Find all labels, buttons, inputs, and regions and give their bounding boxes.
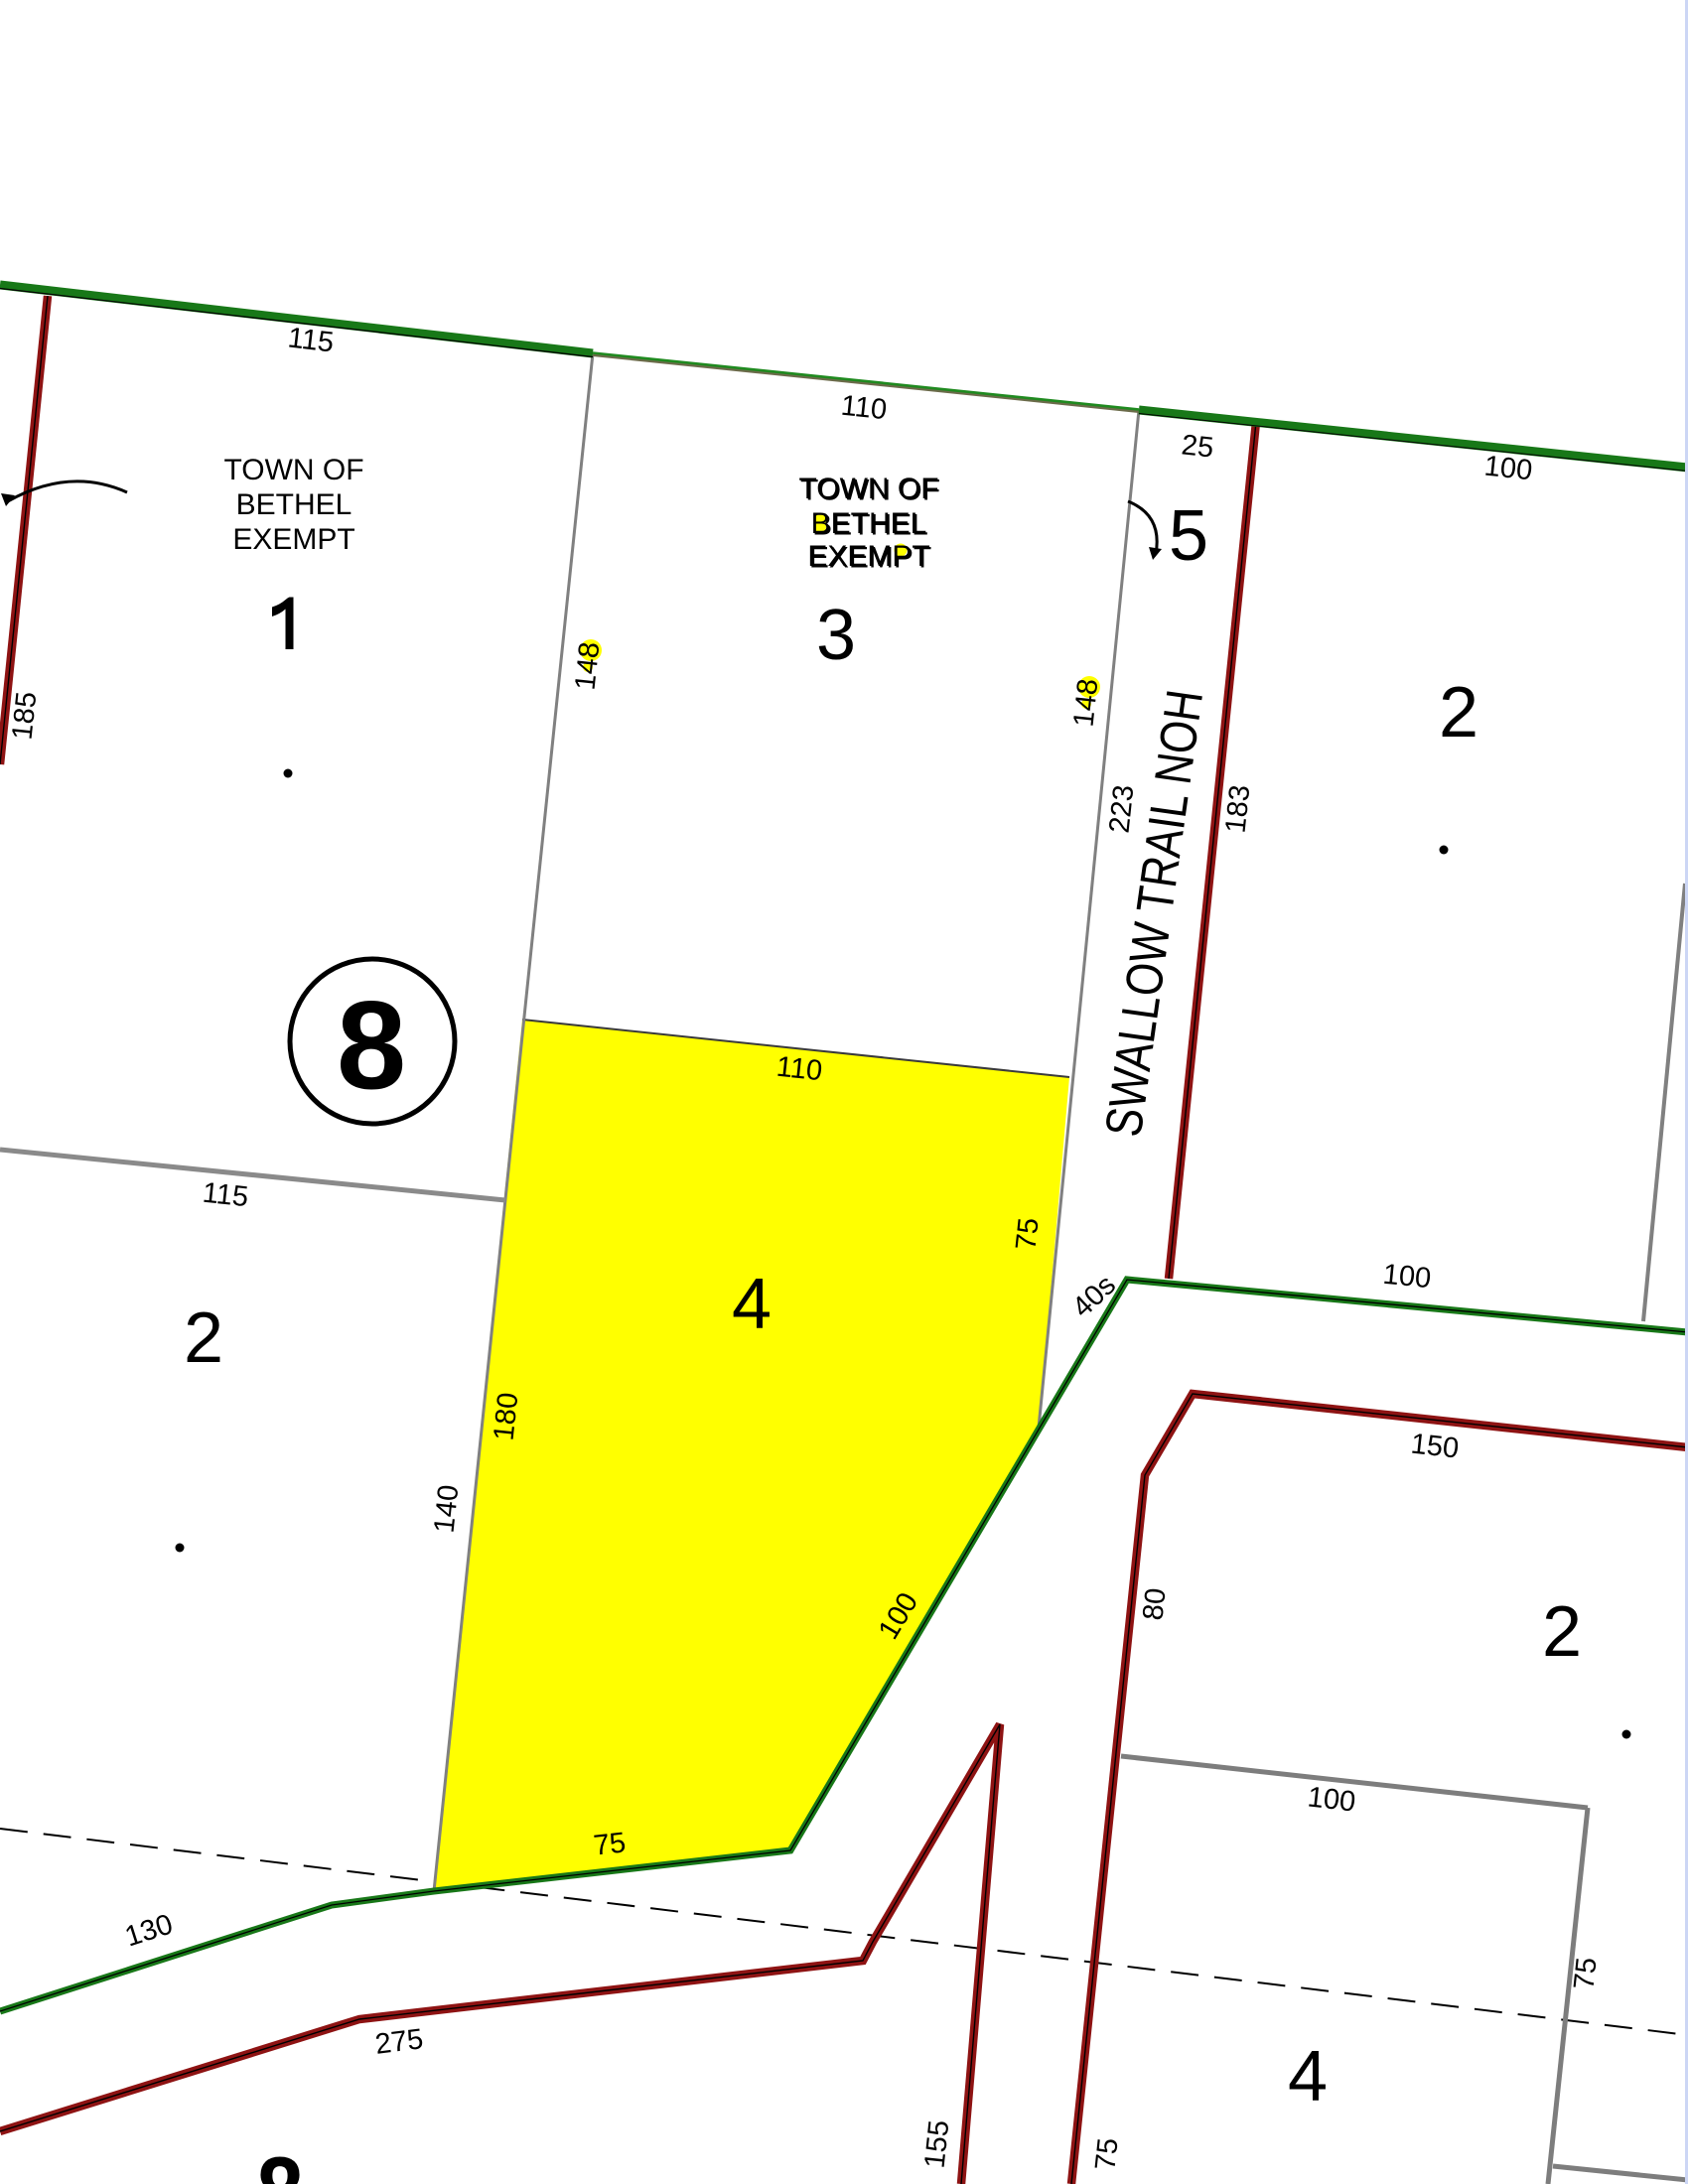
- svg-text:75: 75: [592, 1827, 628, 1861]
- svg-text:5: 5: [1169, 496, 1208, 576]
- svg-text:75: 75: [1089, 2136, 1124, 2171]
- svg-text:2: 2: [1439, 673, 1478, 752]
- svg-text:275: 275: [373, 2023, 425, 2061]
- svg-text:BETHEL: BETHEL: [811, 507, 927, 540]
- svg-text:148: 148: [1068, 677, 1105, 728]
- svg-text:155: 155: [919, 2118, 956, 2169]
- svg-text:115: 115: [286, 322, 336, 358]
- svg-text:4: 4: [1288, 2037, 1328, 2116]
- svg-text:8: 8: [256, 2136, 303, 2184]
- svg-text:TOWN OF: TOWN OF: [798, 473, 938, 505]
- svg-text:110: 110: [839, 390, 888, 427]
- svg-text:100: 100: [1482, 451, 1533, 487]
- svg-text:EXEMPT: EXEMPT: [232, 523, 354, 556]
- svg-text:115: 115: [201, 1177, 249, 1214]
- svg-text:EXEMPT: EXEMPT: [807, 540, 929, 573]
- svg-text:100: 100: [1306, 1781, 1357, 1818]
- svg-text:8: 8: [337, 976, 406, 1116]
- svg-text:183: 183: [1220, 783, 1257, 834]
- svg-text:185: 185: [7, 690, 44, 741]
- svg-text:223: 223: [1104, 783, 1141, 834]
- svg-text:180: 180: [489, 1391, 525, 1441]
- svg-text:75: 75: [1568, 1956, 1603, 1990]
- svg-text:BETHEL: BETHEL: [236, 488, 352, 521]
- svg-text:148: 148: [570, 640, 607, 691]
- svg-text:140: 140: [429, 1483, 466, 1534]
- svg-text:2: 2: [1542, 1592, 1582, 1672]
- svg-text:4: 4: [732, 1265, 772, 1344]
- svg-text:150: 150: [1409, 1428, 1461, 1464]
- svg-text:80: 80: [1137, 1586, 1172, 1621]
- svg-text:3: 3: [816, 596, 856, 675]
- svg-text:110: 110: [774, 1051, 823, 1088]
- svg-text:TOWN OF: TOWN OF: [223, 454, 363, 486]
- svg-text:75: 75: [1010, 1216, 1045, 1251]
- svg-text:25: 25: [1180, 429, 1214, 464]
- svg-text:2: 2: [184, 1298, 223, 1378]
- svg-text:100: 100: [1381, 1259, 1432, 1295]
